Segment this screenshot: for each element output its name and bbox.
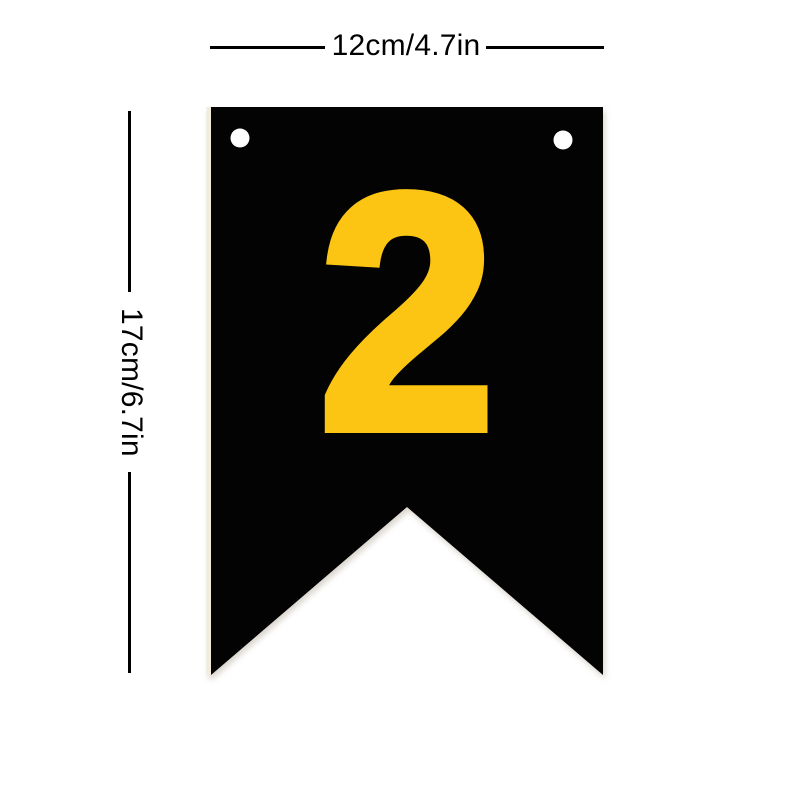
banner-edge-highlight xyxy=(207,107,212,675)
banner-number: 2 xyxy=(221,145,593,480)
product-image: 12cm/4.7in 17cm/6.7in 2 xyxy=(0,0,800,800)
